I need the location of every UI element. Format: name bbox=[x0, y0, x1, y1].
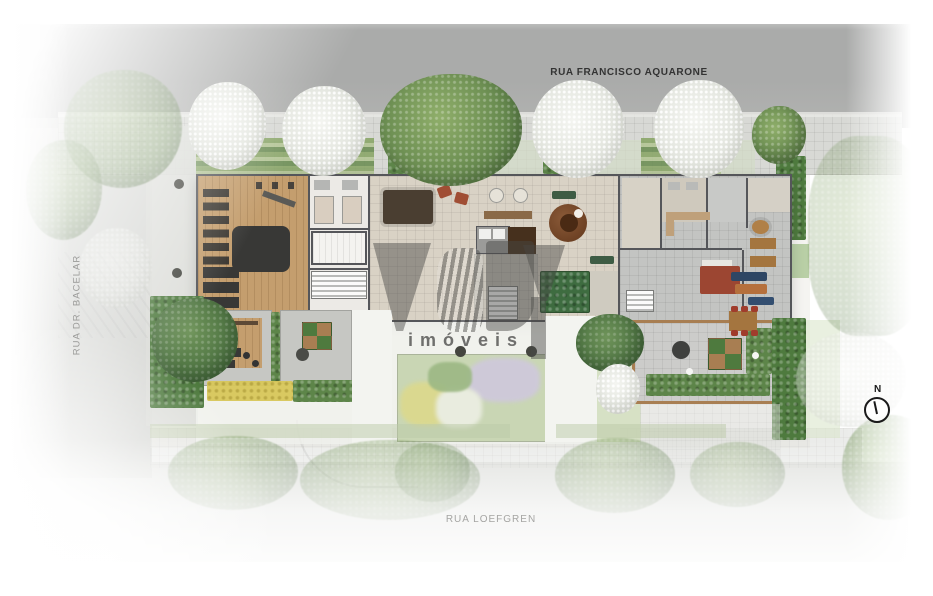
tree-white bbox=[532, 80, 624, 178]
sauna-room bbox=[311, 231, 367, 265]
stairs bbox=[311, 271, 367, 299]
tree-circle-marker bbox=[296, 348, 309, 361]
pouf bbox=[574, 209, 583, 218]
outdoor-chair-red bbox=[731, 306, 738, 312]
outdoor-chair-red bbox=[741, 330, 748, 336]
indoor-garden bbox=[540, 271, 590, 313]
stairs bbox=[488, 286, 518, 320]
round-table bbox=[489, 188, 504, 203]
green-sofa bbox=[590, 256, 614, 264]
coworking-desk-orange bbox=[735, 284, 767, 294]
bath-fixture bbox=[668, 182, 680, 190]
faded-tree bbox=[26, 140, 102, 240]
tree-trunk-dot bbox=[526, 346, 537, 357]
garden-patch-green bbox=[428, 362, 472, 392]
tree-circle-marker bbox=[672, 341, 690, 359]
flowering-shrub bbox=[596, 364, 640, 414]
entry-door bbox=[508, 227, 536, 254]
bath-fixture bbox=[342, 180, 358, 190]
wall bbox=[308, 268, 370, 270]
street-label-left: RUA DR. BACELAR bbox=[72, 255, 83, 356]
bath-fixture bbox=[314, 180, 330, 190]
wall bbox=[308, 228, 370, 230]
site-plan-canvas: imóveis RUA FRANCISCO AQUARONE RUA DR. B… bbox=[0, 0, 933, 596]
pavers-patch bbox=[590, 271, 618, 315]
room-fill bbox=[748, 178, 790, 212]
room-fill bbox=[622, 178, 660, 248]
tree-white bbox=[282, 86, 366, 176]
coworking-sofa-blue bbox=[748, 297, 774, 305]
wood-table bbox=[750, 238, 776, 249]
outdoor-chair-red bbox=[741, 306, 748, 312]
dining-table bbox=[383, 190, 433, 224]
kitchen-counter bbox=[666, 212, 674, 236]
gym-equipment-mat bbox=[232, 226, 290, 272]
massage-bed bbox=[314, 196, 334, 224]
faded-tree bbox=[555, 438, 675, 513]
outdoor-chair-red bbox=[731, 330, 738, 336]
tree-white bbox=[188, 82, 266, 170]
wall bbox=[368, 176, 370, 320]
wall bbox=[620, 248, 742, 250]
green-sofa bbox=[552, 191, 576, 199]
planter-checker bbox=[708, 338, 742, 370]
white-sofa bbox=[702, 260, 732, 266]
planter-checker bbox=[302, 322, 332, 350]
hedge-courtyard-c-right bbox=[746, 328, 772, 374]
faded-tree bbox=[168, 436, 298, 510]
street-label-top: RUA FRANCISCO AQUARONE bbox=[550, 67, 707, 78]
hedge-row-faded bbox=[150, 424, 510, 438]
tree-trunk-dot bbox=[172, 268, 182, 278]
tree-white bbox=[654, 80, 744, 178]
faded-tree bbox=[395, 442, 470, 502]
exercise-ball bbox=[243, 352, 250, 359]
tree bbox=[752, 106, 806, 164]
faded-tree bbox=[80, 228, 152, 308]
north-compass: N bbox=[856, 384, 896, 432]
north-label: N bbox=[874, 384, 881, 395]
tree-trunk-dot bbox=[174, 179, 184, 189]
light-fixture bbox=[686, 368, 693, 375]
faded-tree bbox=[690, 442, 785, 507]
round-table bbox=[513, 188, 528, 203]
tree bbox=[152, 298, 238, 382]
faded-tree bbox=[808, 136, 930, 336]
gym-free-weights bbox=[256, 182, 296, 189]
tree bbox=[576, 314, 644, 372]
wall bbox=[746, 178, 748, 228]
elevator-cab bbox=[493, 229, 505, 239]
tree bbox=[380, 74, 522, 186]
street-label-bottom: RUA LOEFGREN bbox=[446, 514, 536, 525]
coworking-desk-blue bbox=[731, 272, 767, 281]
outdoor-table bbox=[729, 311, 757, 331]
wall bbox=[660, 178, 662, 248]
stairs bbox=[626, 290, 654, 312]
hedge-divider bbox=[271, 312, 280, 382]
outdoor-chair-red bbox=[751, 330, 758, 336]
exercise-ball bbox=[252, 360, 259, 367]
bath-fixture bbox=[686, 182, 698, 190]
buffet-console bbox=[484, 211, 532, 219]
hedge-row-faded bbox=[556, 424, 726, 438]
garden-patch-white bbox=[436, 388, 482, 428]
hedge-courtyard-c-bottom bbox=[646, 374, 770, 396]
wood-table bbox=[750, 256, 776, 267]
light-fixture bbox=[752, 352, 759, 359]
room-fill bbox=[708, 178, 746, 222]
massage-bed bbox=[342, 196, 362, 224]
gym-treadmill-row bbox=[203, 189, 229, 265]
round-table-4 bbox=[752, 220, 769, 234]
outdoor-chair-red bbox=[751, 306, 758, 312]
watermark-imoveis-label: imóveis bbox=[408, 330, 524, 351]
elevator-cab bbox=[479, 229, 491, 239]
flower-bed-yellow bbox=[207, 381, 293, 401]
